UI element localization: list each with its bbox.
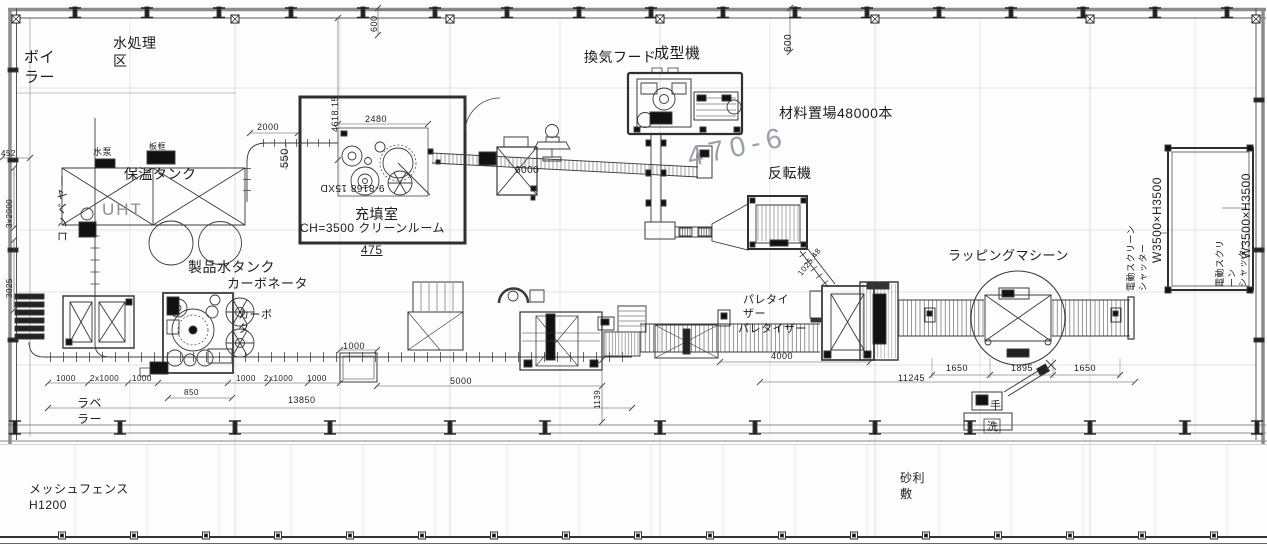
- perimeter-fence: [0, 537, 1267, 544]
- insulated-tank: [62, 151, 245, 225]
- molding-machine: [628, 68, 742, 134]
- air-conveyor: [432, 146, 712, 178]
- shrink-packer: [520, 312, 614, 370]
- wrapping-turntable: [971, 271, 1065, 365]
- incline-conveyor: [800, 248, 835, 287]
- left-conveyor-line: [15, 118, 134, 357]
- filling-room: [300, 97, 500, 243]
- palletizer-machine: [810, 286, 874, 360]
- product-water-tanks: [149, 221, 242, 265]
- plan-canvas: ボイ ラー水処理 区4618.15600600水泵板框保温タンクUHTコンベヤー…: [0, 0, 1267, 545]
- repeated-decor: [0, 5, 1264, 539]
- stretch-wrapper: [860, 282, 898, 360]
- dimension-lines: [2, 8, 1135, 422]
- cap-feeder: [534, 125, 570, 162]
- handwash-station: [964, 360, 1056, 433]
- accumulation-conveyor: [604, 306, 718, 358]
- cad-linework: [0, 0, 1267, 545]
- carbonator-filler: [140, 293, 254, 376]
- tank-outlet-conveyor: [247, 143, 338, 202]
- shutter-room: [1160, 145, 1253, 293]
